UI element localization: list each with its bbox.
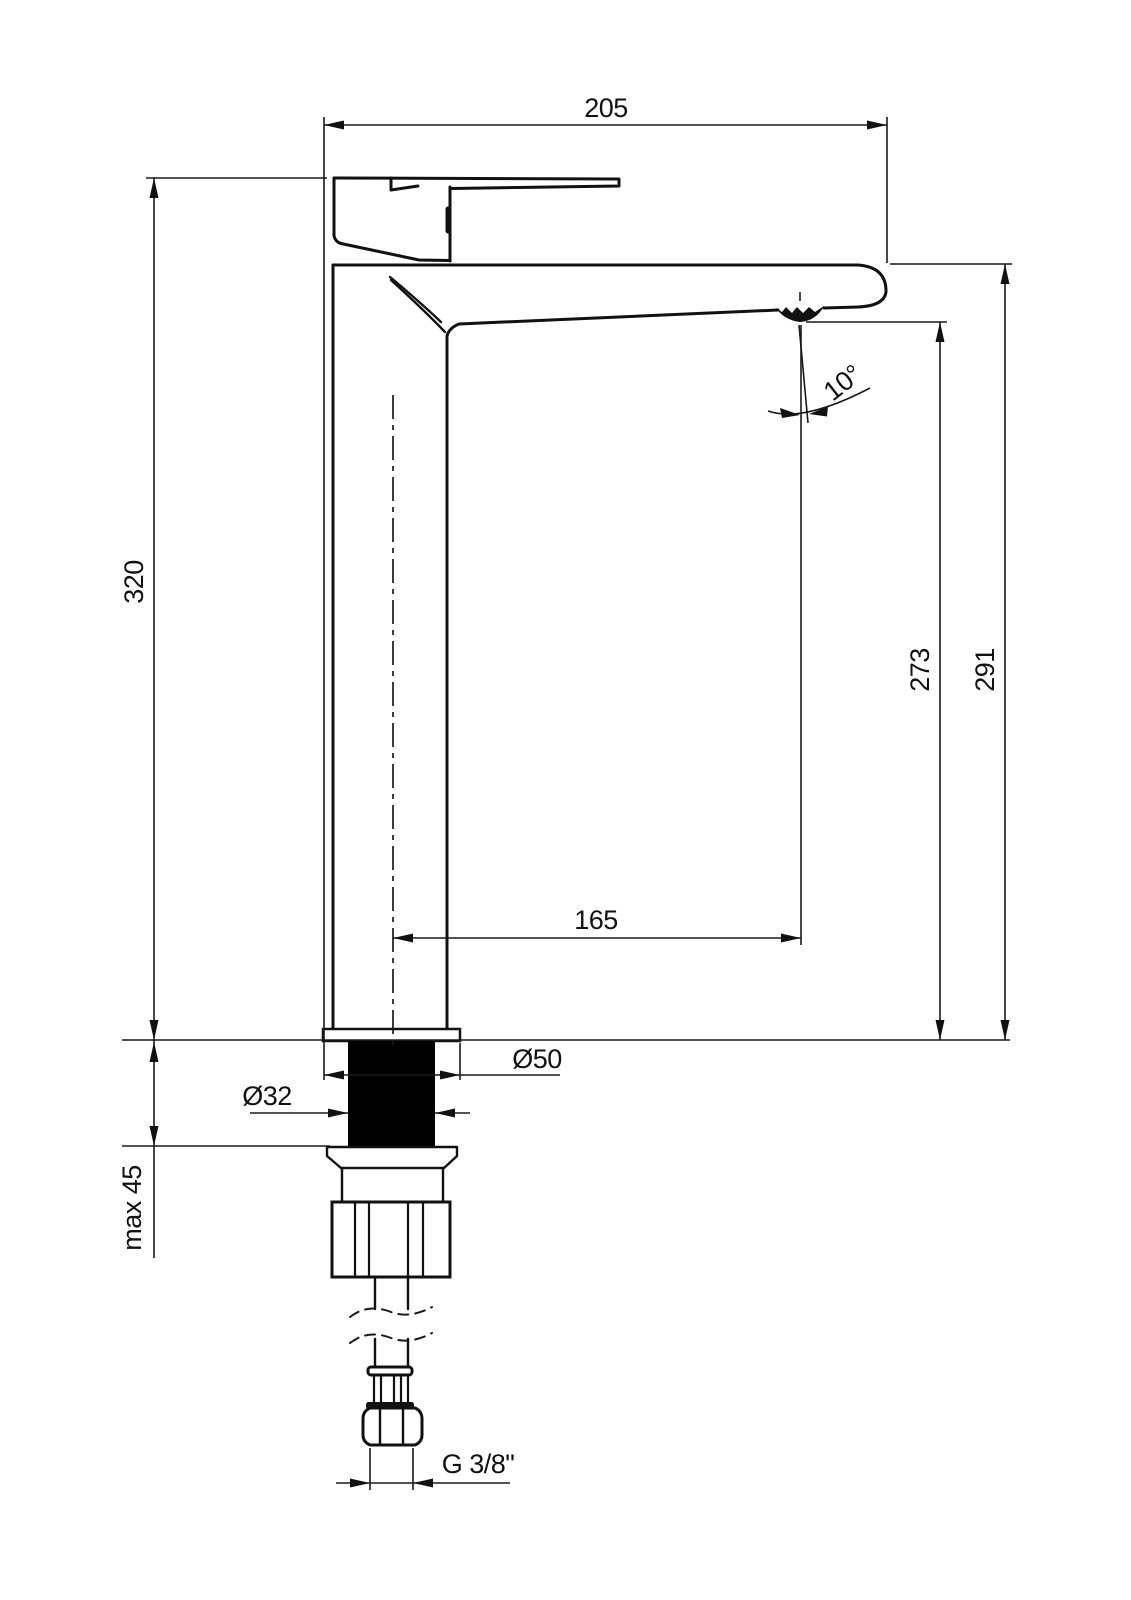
faucet-dimension-drawing: 205 320 max 45 273 291 165: [0, 0, 1131, 1600]
fitting-collar-top: [368, 1367, 412, 1375]
handle-lever: [334, 178, 619, 189]
dim-label-205: 205: [584, 93, 628, 123]
dimension-max-45: max 45: [117, 1040, 330, 1258]
dimension-165: 165: [393, 325, 801, 945]
hose-lower: [375, 1339, 408, 1368]
threaded-shank: [348, 1041, 435, 1146]
fitting-cage: [374, 1375, 408, 1402]
hose-upper: [375, 1277, 408, 1309]
dim-label-273: 273: [905, 648, 935, 692]
dim-label-10deg: 10°: [818, 359, 867, 407]
dim-label-g38: G 3/8": [442, 1449, 515, 1479]
dimension-thread-g38: G 3/8": [336, 1448, 514, 1490]
break-line-2: [350, 1333, 432, 1343]
aerator: [776, 306, 824, 322]
mounting-nut: [332, 1202, 450, 1277]
dim-label-d50: Ø50: [512, 1044, 562, 1074]
dim-label-max45: max 45: [117, 1165, 147, 1251]
break-line-1: [350, 1307, 432, 1317]
dimension-273: 273: [806, 322, 947, 1040]
technical-drawing-page: 205 320 max 45 273 291 165: [0, 0, 1131, 1600]
spout-junction-line-1: [390, 277, 441, 322]
hex-nut-facets: [380, 1408, 403, 1445]
dim-label-291: 291: [970, 648, 1000, 692]
dimension-angle-10: 10°: [768, 325, 870, 423]
spout-junction-line-2: [391, 280, 445, 332]
mounting-neck: [342, 1168, 443, 1202]
dimension-320: 320: [119, 178, 327, 1040]
dim-label-165: 165: [574, 905, 618, 935]
mounting-washer: [327, 1147, 457, 1168]
hex-nut: [363, 1408, 422, 1445]
dim-label-320: 320: [119, 560, 149, 604]
handle-lever-notch: [391, 178, 418, 190]
dim-label-d32: Ø32: [242, 1081, 292, 1111]
